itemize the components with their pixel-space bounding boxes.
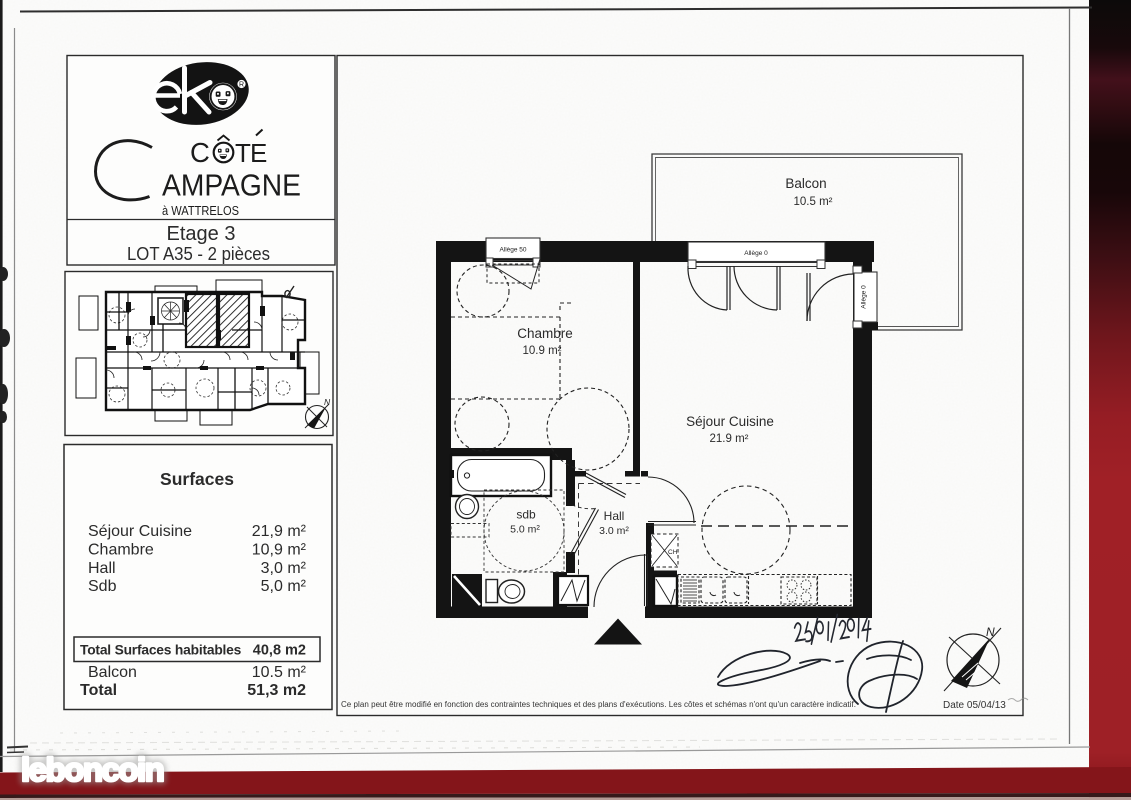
svg-text:Balcon: Balcon [785,176,826,191]
svg-text:T: T [235,138,251,168]
svg-text:Surfaces: Surfaces [160,469,234,489]
svg-text:sdb: sdb [516,508,536,522]
svg-text:AMPAGNE: AMPAGNE [162,168,301,203]
svg-text:10,9 m²: 10,9 m² [252,542,307,559]
svg-text:51,3 m2: 51,3 m2 [247,682,306,699]
svg-text:Allège 0: Allège 0 [744,250,768,257]
svg-text:N: N [324,397,331,407]
svg-text:leboncoin: leboncoin [21,751,164,788]
svg-text:Ce plan peut être modifié en f: Ce plan peut être modifié en fonction de… [341,700,856,709]
svg-text:5,0 m²: 5,0 m² [261,578,307,595]
svg-text:E: E [250,138,267,168]
svg-text:Date 05/04/13: Date 05/04/13 [943,700,1006,711]
svg-text:10.9 m²: 10.9 m² [523,345,562,357]
svg-text:C: C [190,137,211,168]
svg-text:Total: Total [80,682,117,699]
svg-text:3,0 m²: 3,0 m² [261,560,307,577]
svg-text:Hall: Hall [604,509,625,523]
svg-text:Total Surfaces habitables: Total Surfaces habitables [80,643,242,658]
svg-text:Séjour Cuisine: Séjour Cuisine [88,523,192,540]
svg-text:10.5 m²: 10.5 m² [794,196,833,208]
svg-text:3.0 m²: 3.0 m² [599,525,629,537]
svg-text:5.0 m²: 5.0 m² [510,524,540,536]
svg-text:Séjour Cuisine: Séjour Cuisine [686,414,774,429]
svg-text:LOT A35 - 2 pièces: LOT A35 - 2 pièces [127,244,270,264]
svg-text:Allège 50: Allège 50 [499,247,526,254]
svg-text:Hall: Hall [88,560,116,577]
svg-text:40,8 m2: 40,8 m2 [253,643,306,659]
svg-text:CH: CH [668,549,678,556]
svg-text:21.9 m²: 21.9 m² [710,433,749,445]
svg-text:Chambre: Chambre [517,326,573,341]
svg-text:Chambre: Chambre [88,542,154,559]
svg-text:Sdb: Sdb [88,578,117,595]
svg-text:10.5 m²: 10.5 m² [252,664,307,681]
svg-text:à WATTRELOS: à WATTRELOS [162,204,239,218]
svg-text:N: N [986,625,995,639]
svg-text:R: R [239,82,244,89]
svg-text:21,9 m²: 21,9 m² [252,523,307,540]
svg-text:Balcon: Balcon [88,664,137,681]
svg-text:Etage 3: Etage 3 [167,223,236,245]
svg-text:Allège 0: Allège 0 [861,285,868,309]
